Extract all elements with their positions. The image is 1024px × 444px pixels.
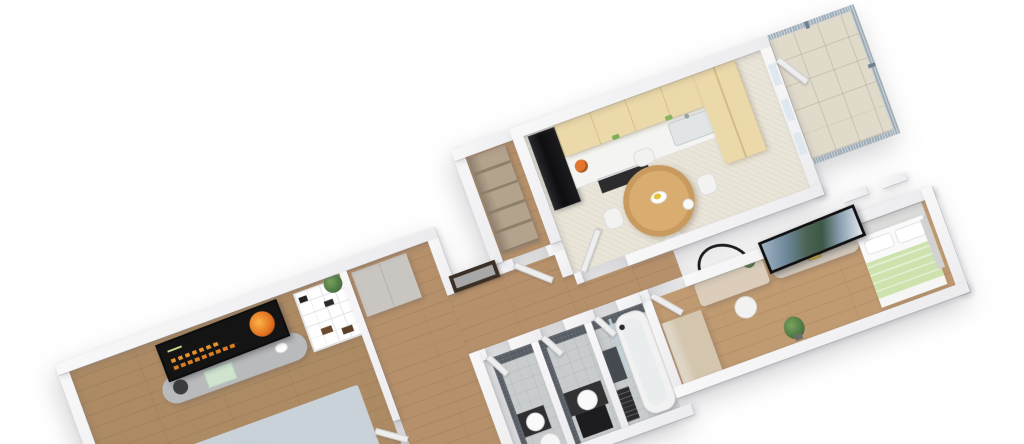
living-tv-small-text <box>167 345 182 352</box>
bedroom-window-sill-1 <box>841 186 869 203</box>
apartment-3d-plan <box>32 0 1013 444</box>
floor-plan-canvas <box>0 0 1024 444</box>
bedroom-window-sill-2 <box>880 172 908 189</box>
living-tv-orange-graphic <box>246 308 279 341</box>
